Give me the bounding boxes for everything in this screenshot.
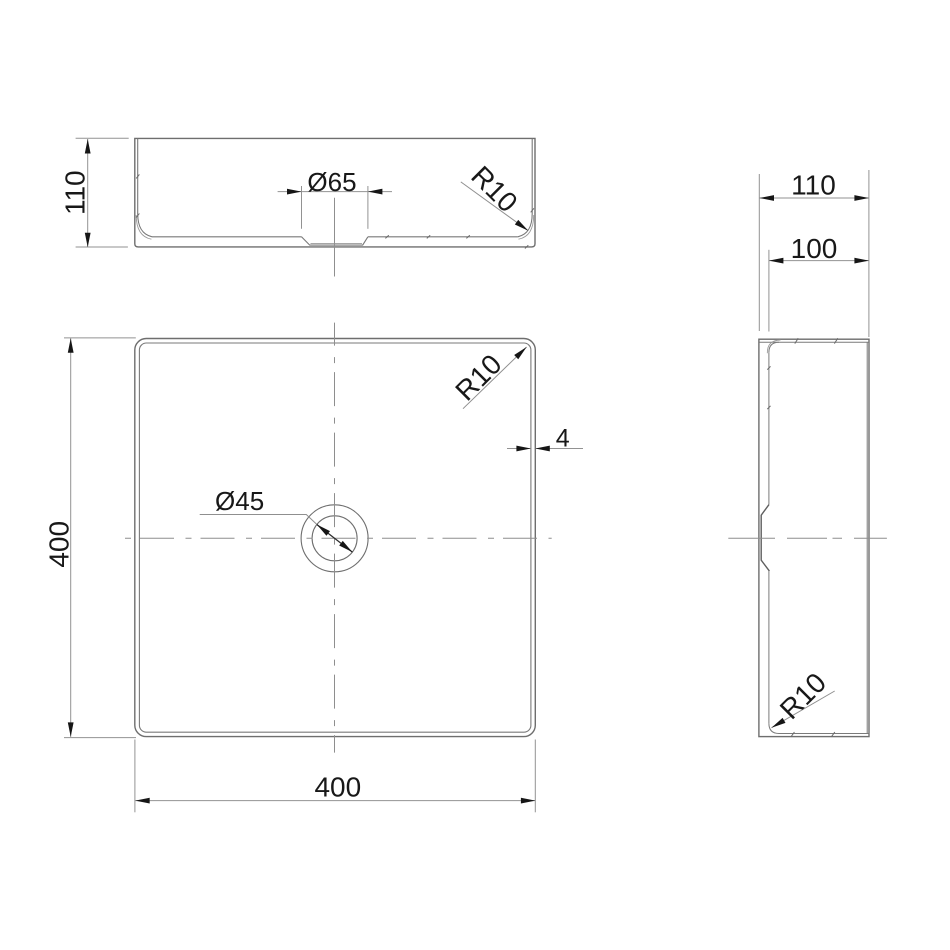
svg-text:100: 100	[791, 233, 838, 264]
svg-text:Ø65: Ø65	[307, 167, 356, 197]
svg-text:400: 400	[43, 521, 74, 568]
svg-text:110: 110	[59, 170, 90, 215]
svg-text:4: 4	[556, 424, 570, 452]
svg-text:Ø45: Ø45	[215, 486, 264, 516]
svg-text:110: 110	[791, 170, 836, 201]
svg-text:400: 400	[314, 772, 361, 803]
